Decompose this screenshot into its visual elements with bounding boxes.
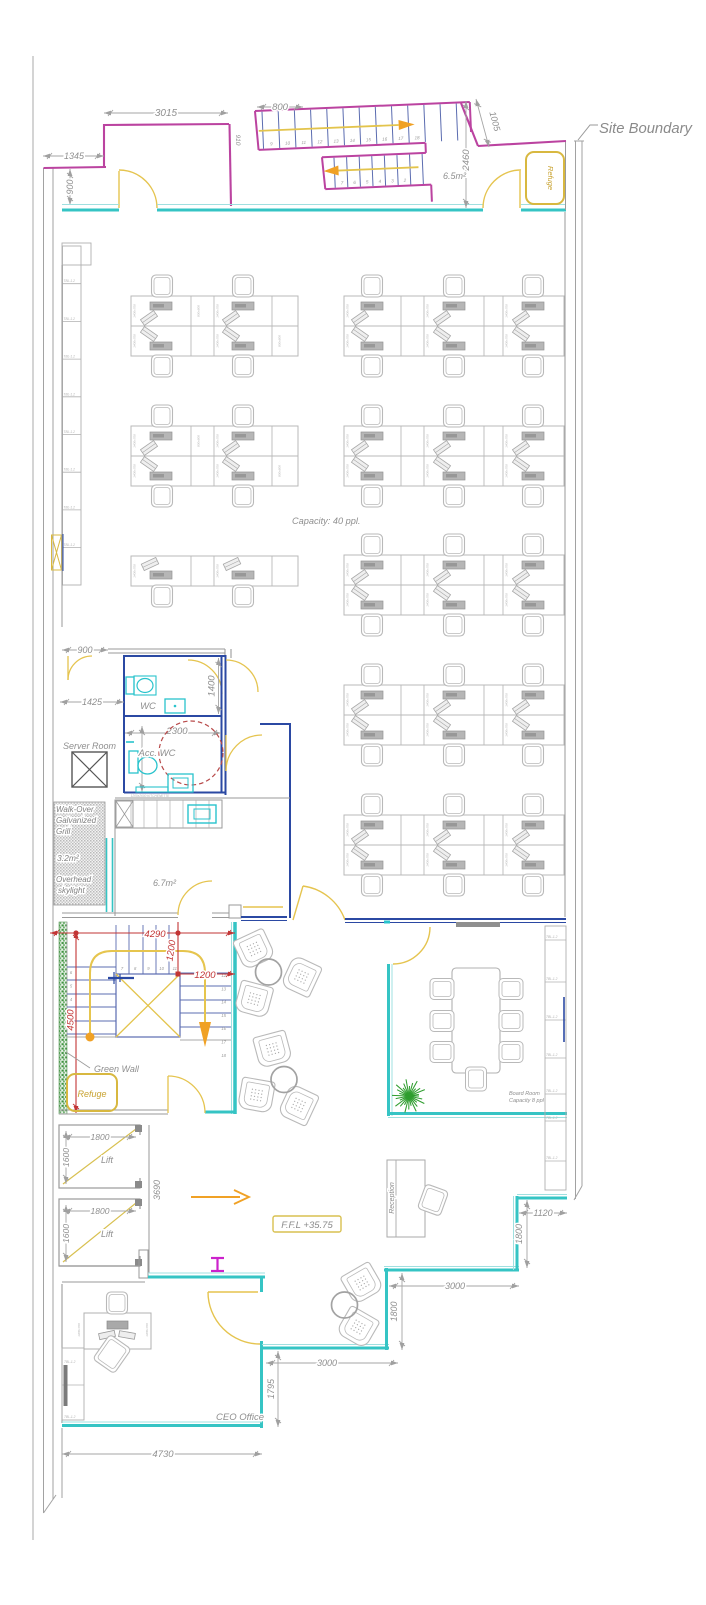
- svg-text:18: 18: [221, 1053, 226, 1058]
- svg-text:11: 11: [173, 966, 177, 971]
- svg-text:1400x700: 1400x700: [346, 304, 350, 318]
- svg-text:3.2m²: 3.2m²: [57, 853, 80, 863]
- svg-text:1400x700: 1400x700: [426, 304, 430, 318]
- svg-text:1400x700: 1400x700: [505, 823, 509, 837]
- svg-text:1400x700: 1400x700: [133, 434, 137, 448]
- svg-text:1425: 1425: [82, 697, 103, 707]
- svg-text:15: 15: [366, 137, 372, 142]
- svg-text:1400x700: 1400x700: [505, 434, 509, 448]
- svg-text:TBL-1.2: TBL-1.2: [64, 355, 76, 359]
- svg-text:1400x700: 1400x700: [133, 304, 137, 318]
- svg-text:TBL-1.2: TBL-1.2: [64, 1360, 76, 1364]
- svg-text:1400x700: 1400x700: [426, 723, 430, 737]
- svg-text:Acc. WC: Acc. WC: [138, 748, 176, 759]
- svg-text:1400x700: 1400x700: [505, 464, 509, 478]
- svg-text:800x800: 800x800: [197, 305, 201, 317]
- svg-text:Green Wall: Green Wall: [94, 1064, 140, 1074]
- svg-text:Overhead: Overhead: [56, 875, 92, 884]
- svg-text:1400x700: 1400x700: [426, 334, 430, 348]
- svg-text:TBL-1.2: TBL-1.2: [64, 468, 76, 472]
- svg-text:1400x700: 1400x700: [346, 334, 350, 348]
- svg-text:1400x700: 1400x700: [426, 853, 430, 867]
- svg-text:800x800: 800x800: [197, 435, 201, 447]
- svg-text:1200: 1200: [194, 970, 216, 981]
- svg-text:4290: 4290: [144, 929, 166, 940]
- svg-text:1400x700: 1400x700: [426, 563, 430, 577]
- svg-text:1400x700: 1400x700: [346, 464, 350, 478]
- svg-text:900: 900: [77, 645, 92, 655]
- svg-text:1400x700: 1400x700: [426, 693, 430, 707]
- svg-text:10: 10: [285, 141, 291, 146]
- svg-text:1400x700: 1400x700: [505, 304, 509, 318]
- svg-text:TBL-1.2: TBL-1.2: [64, 1415, 76, 1419]
- svg-text:1400x700: 1400x700: [77, 1323, 81, 1337]
- svg-text:14: 14: [221, 1000, 226, 1005]
- svg-text:1400x700: 1400x700: [133, 464, 137, 478]
- svg-text:Lift: Lift: [101, 1229, 114, 1239]
- svg-text:1400x700: 1400x700: [216, 464, 220, 478]
- svg-text:1400x700: 1400x700: [133, 564, 137, 578]
- svg-text:Board Room: Board Room: [509, 1091, 540, 1097]
- svg-text:1600: 1600: [61, 1224, 71, 1243]
- svg-text:16: 16: [221, 1026, 226, 1031]
- svg-text:3000: 3000: [445, 1281, 465, 1291]
- svg-text:1400x700: 1400x700: [346, 853, 350, 867]
- svg-text:800x800: 800x800: [278, 335, 282, 347]
- svg-text:1200x2600 KITCHENETTE: 1200x2600 KITCHENETTE: [131, 794, 171, 798]
- svg-text:1800: 1800: [389, 1301, 399, 1321]
- svg-text:TBL-1.2: TBL-1.2: [64, 430, 76, 434]
- svg-text:1400x700: 1400x700: [505, 723, 509, 737]
- svg-text:1400x700: 1400x700: [505, 563, 509, 577]
- svg-text:14: 14: [350, 138, 356, 143]
- svg-text:Refuge: Refuge: [546, 166, 555, 190]
- svg-text:17: 17: [221, 1040, 226, 1045]
- svg-text:TBL-1.2: TBL-1.2: [546, 1156, 558, 1160]
- svg-text:1400x700: 1400x700: [346, 434, 350, 448]
- svg-text:4500: 4500: [66, 1009, 77, 1031]
- svg-text:Galvanized: Galvanized: [56, 816, 97, 825]
- svg-text:3000: 3000: [317, 1358, 337, 1368]
- svg-text:Capacity 8 ppl: Capacity 8 ppl: [509, 1098, 545, 1104]
- svg-text:F.F.L +35.75: F.F.L +35.75: [281, 1220, 333, 1231]
- svg-text:10: 10: [159, 966, 164, 971]
- svg-text:2300: 2300: [165, 726, 188, 737]
- svg-text:1400x700: 1400x700: [216, 304, 220, 318]
- svg-text:CEO Office: CEO Office: [216, 1412, 264, 1423]
- svg-text:1400x700: 1400x700: [505, 853, 509, 867]
- svg-text:1400: 1400: [207, 675, 218, 697]
- svg-text:1800: 1800: [514, 1224, 524, 1244]
- svg-text:1800: 1800: [91, 1132, 110, 1142]
- svg-text:1400x700: 1400x700: [505, 693, 509, 707]
- svg-text:TBL-1.2: TBL-1.2: [64, 279, 76, 283]
- svg-text:TBL-1.2: TBL-1.2: [546, 1089, 558, 1093]
- svg-text:3015: 3015: [155, 108, 178, 119]
- svg-text:1400x700: 1400x700: [346, 723, 350, 737]
- svg-text:Server Room: Server Room: [63, 741, 117, 751]
- svg-text:900: 900: [65, 179, 75, 194]
- svg-text:1400x700: 1400x700: [346, 693, 350, 707]
- svg-text:12: 12: [317, 139, 323, 144]
- svg-text:1400x700: 1400x700: [145, 1323, 149, 1337]
- svg-text:Site Boundary: Site Boundary: [599, 121, 694, 137]
- svg-text:TBL-1.2: TBL-1.2: [546, 1116, 558, 1120]
- svg-text:1400x700: 1400x700: [346, 593, 350, 607]
- svg-text:1400x700: 1400x700: [505, 334, 509, 348]
- svg-text:Capacity: 40 ppl.: Capacity: 40 ppl.: [292, 516, 360, 526]
- svg-text:6.7m²: 6.7m²: [153, 878, 177, 888]
- svg-text:910: 910: [234, 135, 241, 146]
- svg-text:4730: 4730: [152, 1449, 174, 1460]
- svg-text:1400x700: 1400x700: [346, 823, 350, 837]
- svg-text:3690: 3690: [152, 1180, 162, 1200]
- svg-text:Walk-Over: Walk-Over: [56, 805, 94, 814]
- svg-text:1400x700: 1400x700: [216, 564, 220, 578]
- svg-text:18: 18: [414, 135, 420, 140]
- svg-text:TBL-1.2: TBL-1.2: [64, 317, 76, 321]
- svg-text:TBL-1.2: TBL-1.2: [64, 505, 76, 509]
- svg-text:1400x700: 1400x700: [216, 334, 220, 348]
- svg-text:1400x700: 1400x700: [426, 593, 430, 607]
- svg-text:Reception: Reception: [389, 1182, 396, 1214]
- svg-text:1400x700: 1400x700: [426, 434, 430, 448]
- svg-text:1600: 1600: [61, 1148, 71, 1167]
- svg-text:17: 17: [398, 136, 404, 141]
- svg-text:TBL-1.2: TBL-1.2: [64, 392, 76, 396]
- svg-text:16: 16: [382, 136, 388, 141]
- svg-text:TBL-1.2: TBL-1.2: [546, 1053, 558, 1057]
- svg-text:skylight: skylight: [58, 886, 85, 895]
- svg-text:1120: 1120: [533, 1208, 552, 1218]
- svg-text:Lift: Lift: [101, 1155, 114, 1165]
- svg-text:2460: 2460: [461, 149, 472, 172]
- svg-text:TBL-1.2: TBL-1.2: [64, 543, 76, 547]
- svg-text:800x800: 800x800: [278, 465, 282, 477]
- svg-text:1400x700: 1400x700: [505, 593, 509, 607]
- svg-text:1400x700: 1400x700: [426, 823, 430, 837]
- svg-text:Refuge: Refuge: [77, 1089, 106, 1099]
- svg-text:TBL-1.2: TBL-1.2: [546, 977, 558, 981]
- svg-text:13: 13: [221, 986, 226, 991]
- svg-text:WC: WC: [140, 701, 156, 712]
- svg-text:1400x700: 1400x700: [426, 464, 430, 478]
- svg-text:TBL-1.2: TBL-1.2: [546, 1015, 558, 1019]
- svg-text:15: 15: [221, 1013, 226, 1018]
- svg-text:800: 800: [272, 102, 289, 113]
- svg-text:1800: 1800: [91, 1206, 110, 1216]
- svg-text:1400x700: 1400x700: [216, 434, 220, 448]
- svg-text:13: 13: [333, 139, 339, 144]
- svg-text:TBL-1.2: TBL-1.2: [546, 935, 558, 939]
- svg-text:1795: 1795: [266, 1378, 276, 1399]
- svg-text:11: 11: [301, 140, 306, 145]
- svg-text:1400x700: 1400x700: [133, 334, 137, 348]
- svg-text:1400x700: 1400x700: [346, 563, 350, 577]
- svg-text:6.5m²: 6.5m²: [443, 171, 467, 181]
- svg-text:Grill: Grill: [56, 827, 70, 836]
- svg-text:1345: 1345: [64, 151, 85, 161]
